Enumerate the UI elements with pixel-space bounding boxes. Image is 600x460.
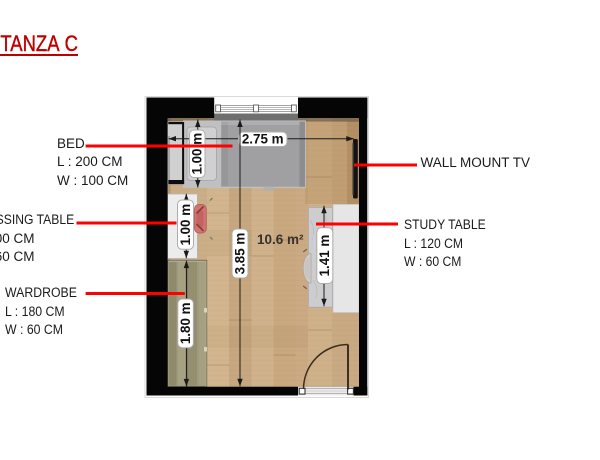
svg-text:1.80 m: 1.80 m [178,302,193,344]
svg-text:3.85 m: 3.85 m [232,233,247,275]
svg-text:10.6 m²: 10.6 m² [257,232,304,247]
svg-text:1.41 m: 1.41 m [317,235,332,277]
svg-text:2.75 m: 2.75 m [242,131,284,146]
svg-text:1.00 m: 1.00 m [190,133,205,175]
svg-text:1.00 m: 1.00 m [178,204,193,246]
